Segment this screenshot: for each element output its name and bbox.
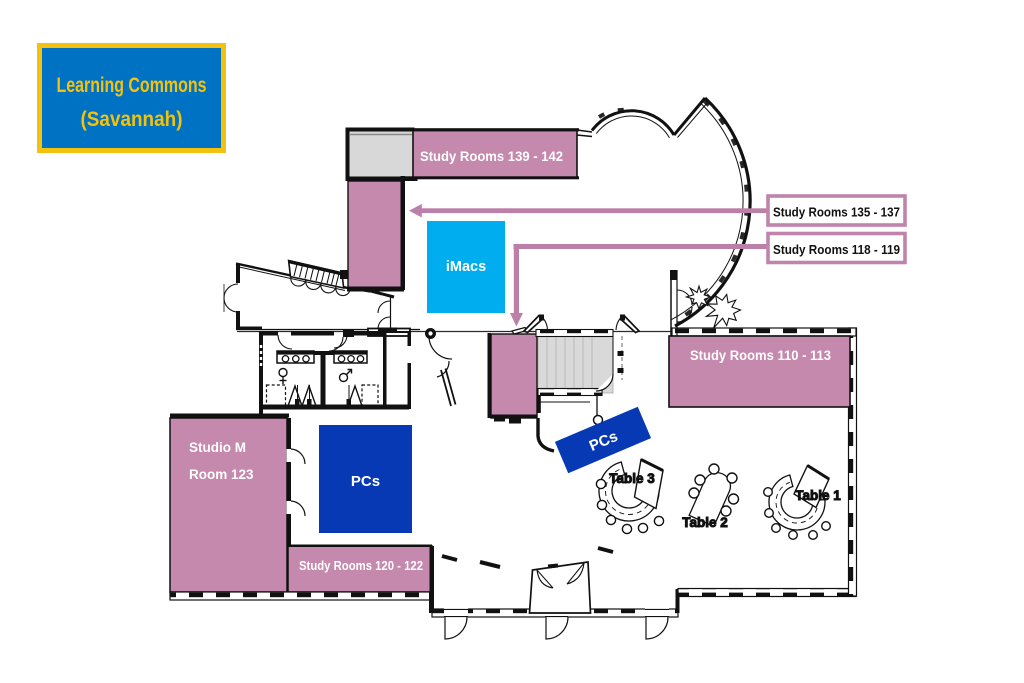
svg-text:iMacs: iMacs (446, 259, 486, 275)
svg-text:Room 123: Room 123 (189, 467, 254, 482)
svg-text:Studio M: Studio M (189, 440, 246, 455)
svg-text:Table 3: Table 3 (609, 471, 655, 486)
svg-text:Table 1: Table 1 (795, 488, 841, 503)
svg-text:Study Rooms 110 - 113: Study Rooms 110 - 113 (690, 348, 831, 363)
svg-text:Study Rooms 118 - 119: Study Rooms 118 - 119 (773, 242, 900, 257)
svg-text:PCs: PCs (351, 473, 380, 490)
svg-text:Table 2: Table 2 (682, 515, 728, 530)
svg-text:Learning Commons: Learning Commons (57, 74, 207, 97)
svg-text:(Savannah): (Savannah) (81, 108, 183, 131)
svg-text:Study Rooms 135 - 137: Study Rooms 135 - 137 (773, 205, 900, 220)
svg-text:Study Rooms 139 - 142: Study Rooms 139 - 142 (420, 149, 563, 164)
svg-text:Study Rooms 120 - 122: Study Rooms 120 - 122 (299, 559, 423, 573)
